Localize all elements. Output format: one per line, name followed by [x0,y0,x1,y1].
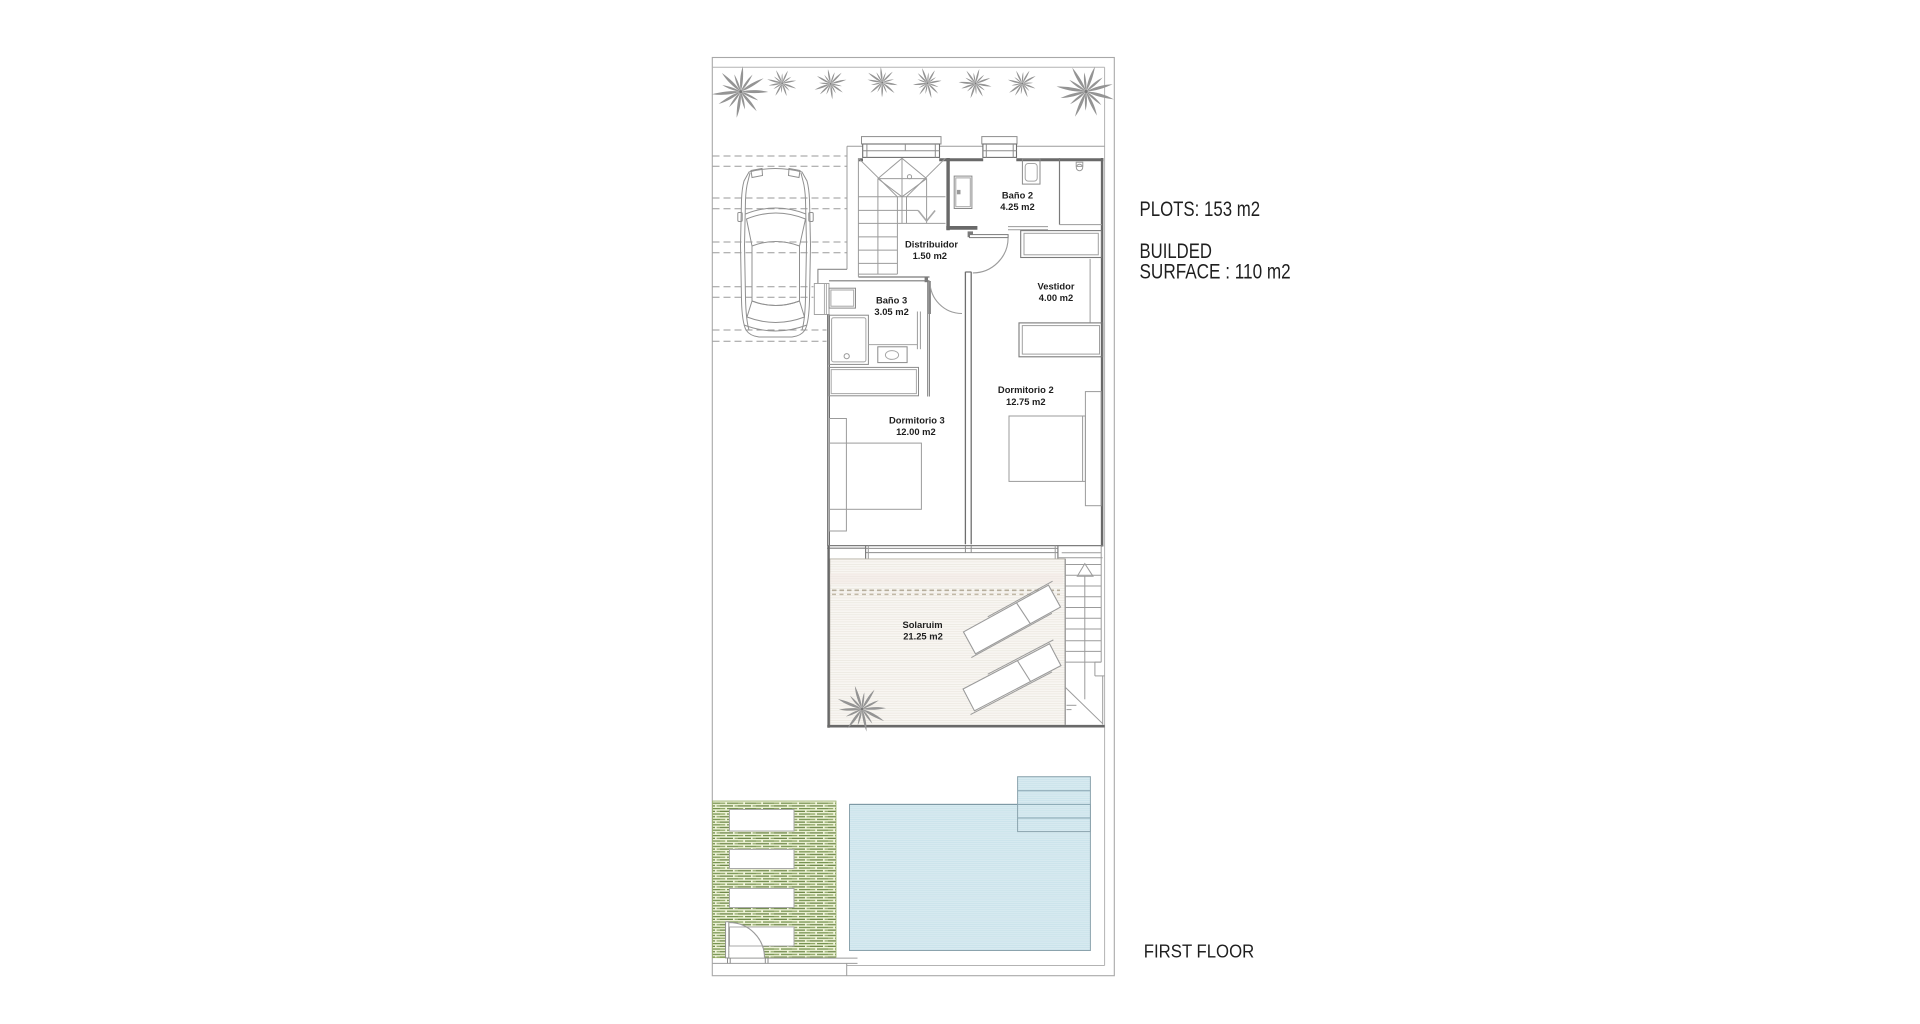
svg-text:21.25 m2: 21.25 m2 [903,630,943,641]
svg-text:Dormitorio 3: Dormitorio 3 [889,415,945,426]
svg-text:PLOTS: 153 m2: PLOTS: 153 m2 [1140,197,1261,221]
svg-text:12.00 m2: 12.00 m2 [896,426,936,437]
svg-text:Vestidor: Vestidor [1038,280,1075,291]
svg-text:4.00 m2: 4.00 m2 [1039,292,1073,303]
svg-text:Distribuidor: Distribuidor [905,238,958,249]
svg-text:4.25 m2: 4.25 m2 [1000,201,1034,212]
svg-text:FIRST FLOOR: FIRST FLOOR [1144,941,1254,962]
svg-text:3.05 m2: 3.05 m2 [874,306,908,317]
svg-text:12.75 m2: 12.75 m2 [1006,396,1046,407]
svg-text:Dormitorio 2: Dormitorio 2 [998,384,1054,395]
svg-text:SURFACE : 110 m2: SURFACE : 110 m2 [1140,260,1291,284]
svg-text:Solaruim: Solaruim [902,619,942,630]
svg-text:Baño 3: Baño 3 [876,294,907,305]
svg-text:1.50 m2: 1.50 m2 [913,250,947,261]
svg-text:Baño 2: Baño 2 [1002,190,1033,201]
